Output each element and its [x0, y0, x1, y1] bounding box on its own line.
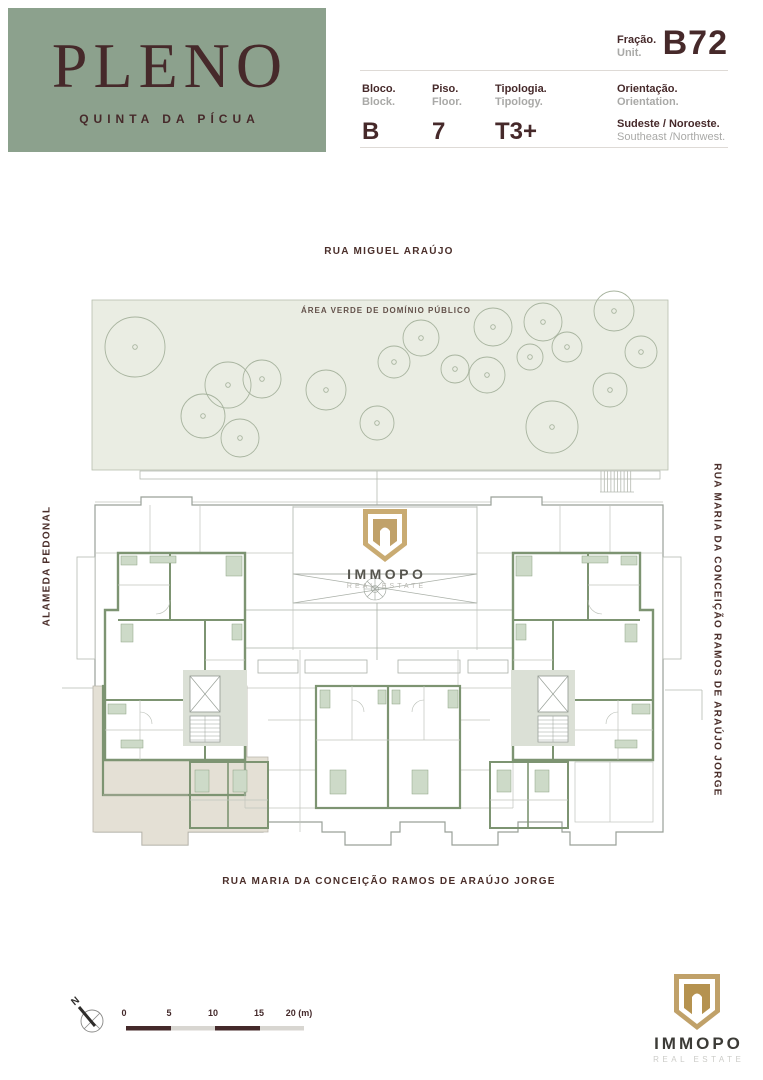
- footer-logo-name: IMMOPO: [651, 1034, 743, 1054]
- vegetation-area: [92, 291, 668, 470]
- field-value: B: [362, 118, 396, 146]
- scale-tick-label: 5: [166, 1008, 171, 1018]
- scale-bar: [126, 1026, 304, 1031]
- unit-number: B72: [663, 24, 728, 63]
- street-label-bottom: RUA MARIA DA CONCEIÇÃO RAMOS DE ARAÚJO J…: [222, 876, 556, 887]
- field-floor: Piso. Floor. 7: [432, 83, 462, 146]
- watermark-name: IMMOPO: [344, 566, 427, 582]
- footer-logo-tagline: REAL ESTATE: [650, 1055, 745, 1064]
- street-label-right: RUA MARIA DA CONCEIÇÃO RAMOS DE ARAÚJO J…: [712, 463, 723, 797]
- field-label-pt: Tipologia.: [495, 83, 547, 96]
- field-label-en: Tipology.: [495, 96, 547, 109]
- divider: [360, 147, 728, 148]
- field-typology: Tipologia. Tipology. T3+: [495, 83, 547, 146]
- brand-logo: PLENO QUINTA DA PÍCUA: [8, 8, 326, 152]
- brand-title: PLENO: [46, 34, 288, 98]
- scale-tick-label: 20 (m): [286, 1008, 313, 1018]
- left-balcony-strip: [77, 557, 95, 659]
- field-label-en: Block.: [362, 96, 396, 109]
- right-balcony-strip: [663, 557, 681, 659]
- street-label-top: RUA MIGUEL ARAÚJO: [324, 246, 454, 257]
- bottom-center-apartments: [316, 686, 460, 808]
- scale-tick-label: 15: [254, 1008, 264, 1018]
- field-value: Sudeste / Noroeste.: [617, 118, 725, 131]
- exterior-steps: [601, 471, 631, 492]
- field-value: 7: [432, 118, 462, 146]
- immopo-logo-icon: [674, 974, 720, 1030]
- field-label-pt: Piso.: [432, 83, 462, 96]
- unit-info-panel: Fração. Unit. B72 Bloco. Block. B Piso.: [360, 26, 728, 148]
- street-label-left: ALAMEDA PEDONAL: [42, 506, 53, 627]
- fraction-label-pt: Fração.: [617, 34, 656, 47]
- field-label-pt: Bloco.: [362, 83, 396, 96]
- fraction-label-en: Unit.: [617, 47, 656, 60]
- site-plan-drawing: [0, 0, 763, 1080]
- floor-plan-sheet: PLENO QUINTA DA PÍCUA Fração. Unit. B72 …: [0, 0, 763, 1080]
- watermark-tagline: REAL ESTATE: [344, 583, 426, 590]
- field-block: Bloco. Block. B: [362, 83, 396, 146]
- field-label-en: Floor.: [432, 96, 462, 109]
- field-orientation: Orientação. Orientation. Sudeste / Noroe…: [617, 83, 725, 144]
- green-area-label: ÁREA VERDE DE DOMÍNIO PÚBLICO: [301, 306, 471, 315]
- field-value: T3+: [495, 118, 547, 146]
- scale-tick-label: 0: [121, 1008, 126, 1018]
- field-label-pt: Orientação.: [617, 83, 725, 96]
- field-value-en: Southeast /Northwest.: [617, 131, 725, 144]
- brand-subtitle: QUINTA DA PÍCUA: [74, 112, 260, 126]
- compass-icon: [79, 1007, 103, 1032]
- field-label-en: Orientation.: [617, 96, 725, 109]
- scale-tick-label: 10: [208, 1008, 218, 1018]
